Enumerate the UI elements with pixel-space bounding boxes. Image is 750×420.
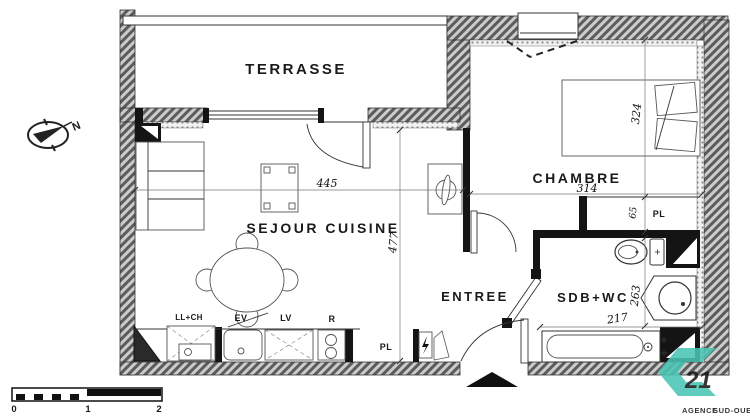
floorplan-page: TERRASSE SEJOUR CUISINE CHAMBRE ENTREE S…: [0, 0, 750, 420]
dim-445: 445: [316, 177, 338, 190]
dishwasher-unit: [265, 330, 313, 360]
chambre-door-leaf: [471, 211, 477, 253]
label-lv: LV: [280, 313, 292, 323]
wall-top-chambre: [447, 16, 728, 40]
room-label-sdb: SDB+WC: [557, 290, 629, 305]
insulation-band-terrace-b: [373, 122, 458, 128]
sdb-door-stub-1: [531, 269, 541, 279]
wall-bottom-left: [120, 362, 460, 375]
jamb-3: [135, 108, 143, 123]
jamb-1: [203, 108, 209, 123]
sink-unit: [224, 330, 262, 360]
entry-door-leaf: [521, 319, 528, 363]
north-label: N: [71, 120, 83, 134]
chambre-door-arc: [477, 213, 516, 252]
insulation-band-top: [470, 40, 697, 46]
kitchen-pillar-2: [345, 329, 353, 362]
scale-bar-solid: [87, 389, 161, 396]
scale-0: 0: [11, 404, 16, 415]
closet-stub: [579, 196, 587, 238]
toilet: [615, 239, 664, 265]
compass-needle-icon: [33, 126, 64, 143]
terrace-railing: [123, 16, 447, 25]
scale-1: 1: [85, 404, 91, 415]
scale-2: 2: [156, 404, 161, 415]
label-pl-chambre: PL: [653, 209, 666, 219]
closet-door-open: [434, 331, 449, 360]
washer-unit: [167, 326, 215, 361]
desk-and-chair: [428, 164, 462, 214]
logo-region: SUD-OUEST: [713, 406, 750, 415]
compass: N: [28, 119, 83, 151]
sdb-door-leaf: [507, 277, 541, 323]
bathtub: [542, 331, 667, 362]
entree-closet: [419, 331, 449, 360]
label-ev: EV: [234, 313, 247, 323]
wall-terrace-bottom-b: [368, 108, 460, 122]
jamb-2: [318, 108, 324, 123]
coffee-table: [261, 164, 298, 212]
dim-65: 65: [627, 206, 639, 219]
entrance-arrow: [466, 372, 518, 387]
logo-number: 21: [684, 367, 712, 394]
terrace-door-arc: [307, 124, 363, 167]
dim-217: 217: [605, 310, 629, 326]
shaft-topleft: [135, 123, 161, 142]
compass-tick-bottom: [52, 145, 55, 151]
room-label-terrasse: TERRASSE: [245, 61, 347, 78]
floorplan-drawing: TERRASSE SEJOUR CUISINE CHAMBRE ENTREE S…: [0, 0, 750, 420]
wall-terrace-bottom-a: [120, 108, 207, 122]
label-ll-ch: LL+CH: [175, 313, 203, 322]
compass-tick-top: [44, 119, 47, 125]
dim-324: 324: [629, 103, 644, 125]
wall-right: [704, 20, 729, 375]
shaft-wc: [666, 231, 700, 268]
fridge-unit: [318, 330, 345, 360]
exterior-walls: [120, 10, 729, 375]
sofa: [136, 142, 204, 230]
wall-sejour-entree: [463, 128, 470, 252]
kitchen-pillar-3: [413, 329, 419, 362]
terrace-door-leaf: [363, 122, 370, 168]
entry-door-arc: [461, 320, 524, 361]
dim-314: 314: [577, 182, 598, 195]
interior-walls: [134, 123, 700, 362]
label-r: R: [329, 314, 336, 324]
shaft-kitchen: [134, 326, 160, 361]
chambre-window: [518, 13, 578, 39]
room-label-entree: ENTREE: [441, 289, 509, 304]
label-pl-entree: PL: [380, 342, 393, 352]
scale-bar: 0 1 2: [11, 388, 162, 415]
dim-477: 477: [386, 232, 401, 255]
room-label-sejour: SEJOUR CUISINE: [246, 220, 399, 236]
agency-logo: 21 AGENCE SUD-OUEST: [658, 348, 750, 415]
dim-263: 263: [628, 285, 643, 308]
terrace-bay-window: [207, 109, 368, 123]
washbasin: [641, 276, 696, 320]
